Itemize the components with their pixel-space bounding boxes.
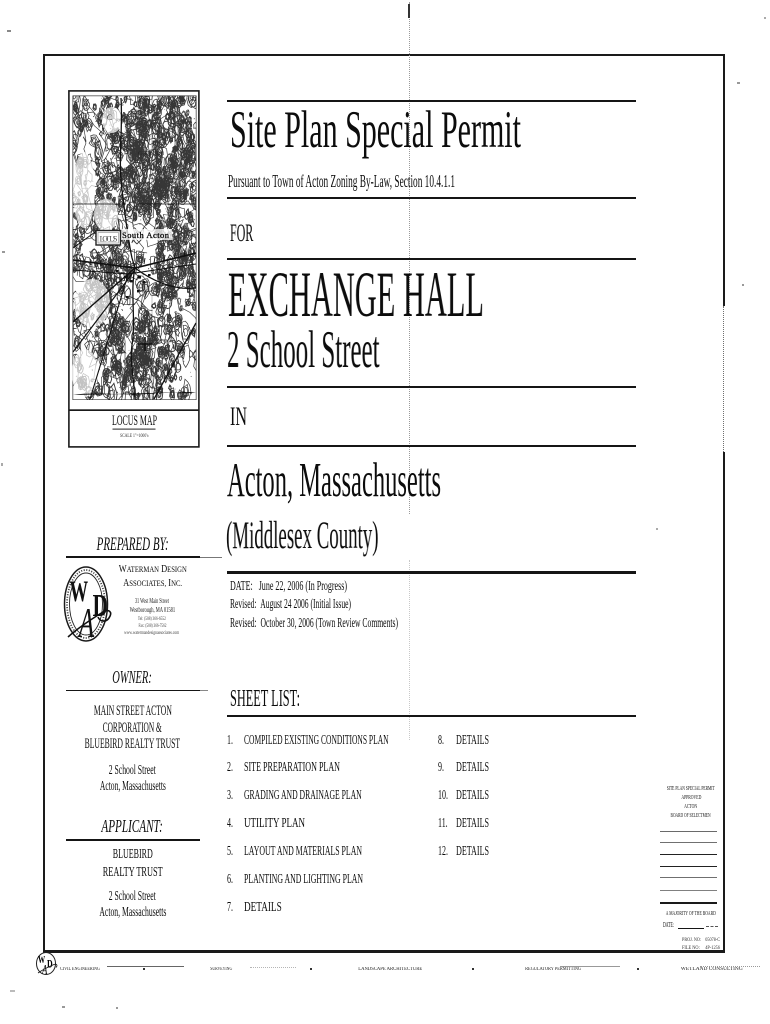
svg-text:Exchange: Exchange — [151, 337, 167, 342]
svg-text:Great Hill: Great Hill — [138, 151, 164, 157]
svg-text:LOCUS MAP: LOCUS MAP — [112, 413, 157, 429]
svg-text:South Acton: South Acton — [122, 230, 170, 240]
svg-text:D: D — [47, 958, 53, 971]
svg-text:LOCUS: LOCUS — [100, 234, 118, 244]
svg-text:SCALE 1"=1000'±: SCALE 1"=1000'± — [120, 433, 149, 439]
